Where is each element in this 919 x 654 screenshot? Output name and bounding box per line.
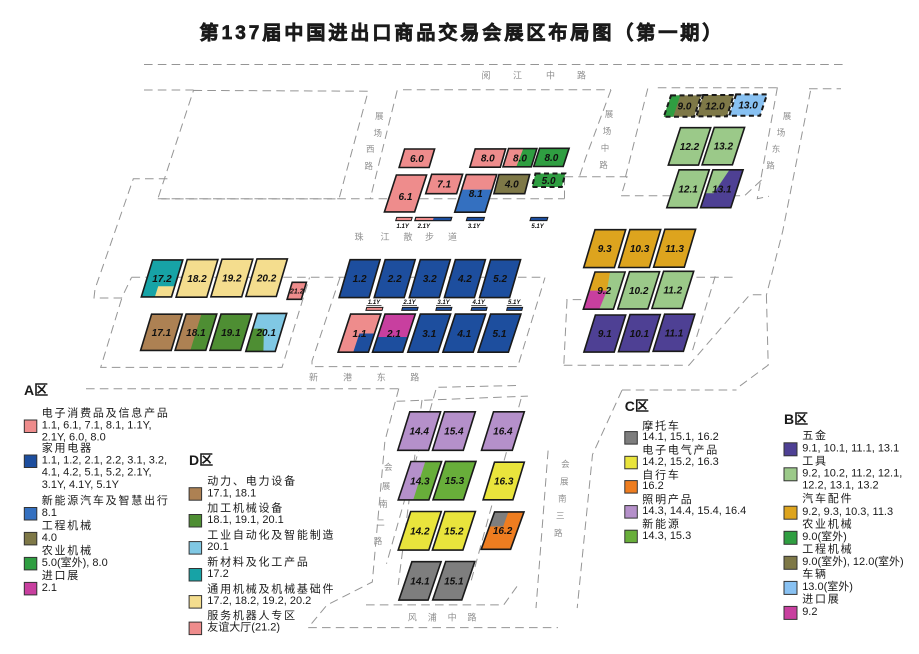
svg-text:9.2, 10.2, 11.2, 12.1,: 9.2, 10.2, 11.2, 12.1, xyxy=(802,467,902,479)
svg-text:进口展: 进口展 xyxy=(802,593,840,606)
svg-text:阅: 阅 xyxy=(481,71,490,81)
svg-text:9.2: 9.2 xyxy=(802,606,817,618)
svg-text:14.3, 15.3: 14.3, 15.3 xyxy=(642,530,691,542)
svg-text:路: 路 xyxy=(467,611,476,622)
svg-text:12.1: 12.1 xyxy=(678,184,698,195)
svg-text:电子电气产品: 电子电气产品 xyxy=(642,443,719,457)
svg-text:14.1, 15.1, 16.2: 14.1, 15.1, 16.2 xyxy=(642,431,718,443)
svg-text:2.2: 2.2 xyxy=(387,274,402,285)
svg-text:风: 风 xyxy=(408,612,417,622)
svg-text:8.0: 8.0 xyxy=(481,154,495,165)
svg-text:7.1: 7.1 xyxy=(437,180,451,191)
svg-text:18.1, 19.1, 20.1: 18.1, 19.1, 20.1 xyxy=(207,514,283,526)
svg-text:14.3: 14.3 xyxy=(410,476,430,487)
svg-text:中: 中 xyxy=(601,143,610,153)
svg-text:南: 南 xyxy=(558,494,567,504)
svg-text:展: 展 xyxy=(605,109,614,119)
svg-text:17.1, 18.1: 17.1, 18.1 xyxy=(207,487,256,499)
svg-text:中: 中 xyxy=(546,70,555,81)
svg-text:13.1: 13.1 xyxy=(712,184,732,195)
svg-text:14.1: 14.1 xyxy=(410,577,430,588)
svg-text:8.1: 8.1 xyxy=(469,189,483,200)
svg-text:南: 南 xyxy=(379,499,388,509)
svg-text:9.0: 9.0 xyxy=(678,102,692,113)
svg-text:浦: 浦 xyxy=(428,611,437,622)
svg-text:9.3: 9.3 xyxy=(598,244,612,255)
svg-text:3.1: 3.1 xyxy=(422,329,436,340)
svg-text:加工机械设备: 加工机械设备 xyxy=(207,500,284,514)
svg-text:散: 散 xyxy=(403,231,412,242)
svg-text:18.2: 18.2 xyxy=(187,274,207,285)
svg-text:中: 中 xyxy=(448,611,457,622)
svg-text:13.0(室外): 13.0(室外) xyxy=(802,579,853,593)
svg-text:15.3: 15.3 xyxy=(445,476,465,487)
svg-text:1.1, 6.1, 7.1, 8.1, 1.1Y,: 1.1, 6.1, 7.1, 8.1, 1.1Y, xyxy=(42,420,152,432)
svg-text:10.3: 10.3 xyxy=(630,244,650,255)
svg-text:9.1: 9.1 xyxy=(598,329,612,340)
svg-text:新材料及化工产品: 新材料及化工产品 xyxy=(207,554,309,568)
svg-text:3.1Y, 4.1Y, 5.1Y: 3.1Y, 4.1Y, 5.1Y xyxy=(42,479,120,491)
svg-text:D区: D区 xyxy=(189,452,213,468)
svg-text:2.1: 2.1 xyxy=(42,582,57,594)
svg-text:2.1Y: 2.1Y xyxy=(417,224,431,230)
svg-text:展: 展 xyxy=(560,476,569,486)
svg-text:2.1: 2.1 xyxy=(386,329,401,340)
svg-text:通用机械及机械基础件: 通用机械及机械基础件 xyxy=(207,581,335,595)
svg-text:13.0: 13.0 xyxy=(738,101,758,112)
svg-text:11.2: 11.2 xyxy=(663,286,682,297)
svg-text:服务机器人专区: 服务机器人专区 xyxy=(207,608,297,622)
svg-text:汽车配件: 汽车配件 xyxy=(802,491,853,505)
svg-text:5.0(室外), 8.0: 5.0(室外), 8.0 xyxy=(42,555,108,569)
svg-text:15.2: 15.2 xyxy=(444,526,464,537)
svg-text:14.4: 14.4 xyxy=(409,427,429,438)
svg-text:3.1Y: 3.1Y xyxy=(468,224,481,230)
svg-text:5.1: 5.1 xyxy=(493,329,507,340)
svg-text:东: 东 xyxy=(377,371,386,382)
svg-text:5.0: 5.0 xyxy=(542,176,556,187)
svg-text:路: 路 xyxy=(599,160,608,170)
svg-text:17.2, 18.2, 19.2, 20.2: 17.2, 18.2, 19.2, 20.2 xyxy=(207,595,311,607)
svg-text:21.2: 21.2 xyxy=(289,288,304,295)
svg-text:1.1: 1.1 xyxy=(353,329,367,340)
svg-text:19.2: 19.2 xyxy=(222,274,242,285)
svg-text:电子消费品及信息产品: 电子消费品及信息产品 xyxy=(42,406,170,420)
svg-text:16.2: 16.2 xyxy=(642,480,663,492)
svg-text:12.0: 12.0 xyxy=(705,101,725,112)
svg-text:友谊大厅(21.2): 友谊大厅(21.2) xyxy=(207,620,280,634)
svg-text:路: 路 xyxy=(766,161,775,171)
svg-text:新能源: 新能源 xyxy=(642,517,680,531)
svg-text:19.1: 19.1 xyxy=(221,328,241,339)
svg-text:17.2: 17.2 xyxy=(152,274,172,285)
svg-text:场: 场 xyxy=(603,126,612,136)
svg-text:1.2: 1.2 xyxy=(353,274,367,285)
svg-text:西: 西 xyxy=(366,144,375,154)
svg-text:工具: 工具 xyxy=(802,454,828,467)
svg-text:20.2: 20.2 xyxy=(256,273,277,284)
svg-text:9.2: 9.2 xyxy=(597,286,611,297)
svg-text:江: 江 xyxy=(513,71,522,81)
svg-text:三: 三 xyxy=(556,511,565,521)
svg-text:工业自动化及智能制造: 工业自动化及智能制造 xyxy=(207,527,335,541)
svg-text:场: 场 xyxy=(374,128,383,138)
svg-text:12.2: 12.2 xyxy=(680,142,700,153)
svg-text:道: 道 xyxy=(448,231,457,242)
svg-text:农业机械: 农业机械 xyxy=(42,543,93,557)
svg-text:10.1: 10.1 xyxy=(630,329,650,340)
svg-text:新: 新 xyxy=(309,371,318,382)
svg-text:东: 东 xyxy=(772,144,781,154)
svg-text:14.2, 15.2, 16.3: 14.2, 15.2, 16.3 xyxy=(642,456,718,468)
svg-text:工程机械: 工程机械 xyxy=(42,518,93,532)
svg-text:1.1Y: 1.1Y xyxy=(397,224,410,230)
svg-text:C区: C区 xyxy=(625,398,649,414)
svg-text:第137届中国进出口商品交易会展区布局图（第一期）: 第137届中国进出口商品交易会展区布局图（第一期） xyxy=(200,21,725,44)
svg-text:1.1, 1.2, 2.1, 2.2, 3.1, 3.2,: 1.1, 1.2, 2.1, 2.2, 3.1, 3.2, xyxy=(42,455,167,467)
svg-text:会: 会 xyxy=(561,459,570,469)
svg-text:动力、电力设备: 动力、电力设备 xyxy=(207,474,297,488)
svg-text:路: 路 xyxy=(410,371,419,382)
svg-text:15.1: 15.1 xyxy=(444,576,464,587)
svg-text:家用电器: 家用电器 xyxy=(42,441,93,455)
svg-text:展: 展 xyxy=(783,111,792,121)
svg-text:8.0: 8.0 xyxy=(513,153,527,164)
svg-text:17.1: 17.1 xyxy=(152,328,172,339)
svg-text:9.0(室外): 9.0(室外) xyxy=(802,529,847,543)
svg-text:路: 路 xyxy=(364,161,373,171)
svg-text:车辆: 车辆 xyxy=(802,566,828,580)
svg-text:江: 江 xyxy=(380,232,389,242)
svg-text:展: 展 xyxy=(382,481,391,491)
svg-text:会: 会 xyxy=(384,462,393,472)
svg-text:11.1: 11.1 xyxy=(665,328,684,339)
svg-text:进口展: 进口展 xyxy=(42,569,80,582)
svg-text:5.2: 5.2 xyxy=(493,274,507,285)
svg-text:13.2: 13.2 xyxy=(714,142,734,153)
svg-text:12.2, 13.1, 13.2: 12.2, 13.1, 13.2 xyxy=(802,480,878,492)
svg-text:20.1: 20.1 xyxy=(255,328,276,339)
svg-text:14.2: 14.2 xyxy=(410,526,430,537)
svg-text:10.2: 10.2 xyxy=(629,286,649,297)
svg-text:20.1: 20.1 xyxy=(207,541,228,553)
svg-text:农业机械: 农业机械 xyxy=(802,516,853,530)
svg-text:4.1, 4.2, 5.1, 5.2, 2.1Y,: 4.1, 4.2, 5.1, 5.2, 2.1Y, xyxy=(42,467,152,479)
svg-text:6.0: 6.0 xyxy=(410,154,424,165)
svg-text:15.4: 15.4 xyxy=(444,427,464,438)
svg-text:5.1Y: 5.1Y xyxy=(531,224,544,230)
svg-text:工程机械: 工程机械 xyxy=(802,541,853,555)
svg-text:17.2: 17.2 xyxy=(207,568,228,580)
svg-text:4.1: 4.1 xyxy=(456,329,471,340)
svg-text:4.0: 4.0 xyxy=(42,532,57,544)
svg-text:6.1: 6.1 xyxy=(399,192,413,203)
svg-text:港: 港 xyxy=(343,371,352,382)
svg-text:场: 场 xyxy=(777,128,786,138)
svg-text:路: 路 xyxy=(554,528,563,538)
svg-text:4.0: 4.0 xyxy=(504,180,519,191)
svg-text:14.3, 14.4, 15.4, 16.4: 14.3, 14.4, 15.4, 16.4 xyxy=(642,505,746,517)
svg-text:路: 路 xyxy=(374,536,383,546)
svg-text:3.2: 3.2 xyxy=(423,274,437,285)
svg-text:16.4: 16.4 xyxy=(493,427,513,438)
svg-text:新能源汽车及智慧出行: 新能源汽车及智慧出行 xyxy=(42,493,170,507)
svg-text:展: 展 xyxy=(375,111,384,121)
svg-text:11.3: 11.3 xyxy=(665,244,684,255)
svg-text:二: 二 xyxy=(376,518,385,528)
svg-text:16.2: 16.2 xyxy=(493,526,513,537)
svg-text:4.2: 4.2 xyxy=(457,274,472,285)
svg-text:18.1: 18.1 xyxy=(186,328,206,339)
svg-text:8.0: 8.0 xyxy=(544,153,558,164)
svg-text:珠: 珠 xyxy=(354,231,363,242)
svg-text:五金: 五金 xyxy=(802,428,828,442)
svg-text:路: 路 xyxy=(577,70,586,81)
svg-text:9.2, 9.3, 10.3, 11.3: 9.2, 9.3, 10.3, 11.3 xyxy=(802,506,893,518)
svg-text:照明产品: 照明产品 xyxy=(642,492,693,506)
svg-text:A区: A区 xyxy=(24,382,48,398)
svg-text:B区: B区 xyxy=(784,411,808,427)
svg-text:8.1: 8.1 xyxy=(42,507,57,519)
svg-text:步: 步 xyxy=(425,232,434,242)
svg-text:9.1, 10.1, 11.1, 13.1: 9.1, 10.1, 11.1, 13.1 xyxy=(802,442,899,454)
svg-text:9.0(室外), 12.0(室外): 9.0(室外), 12.0(室外) xyxy=(802,554,903,568)
svg-text:16.3: 16.3 xyxy=(494,477,514,488)
